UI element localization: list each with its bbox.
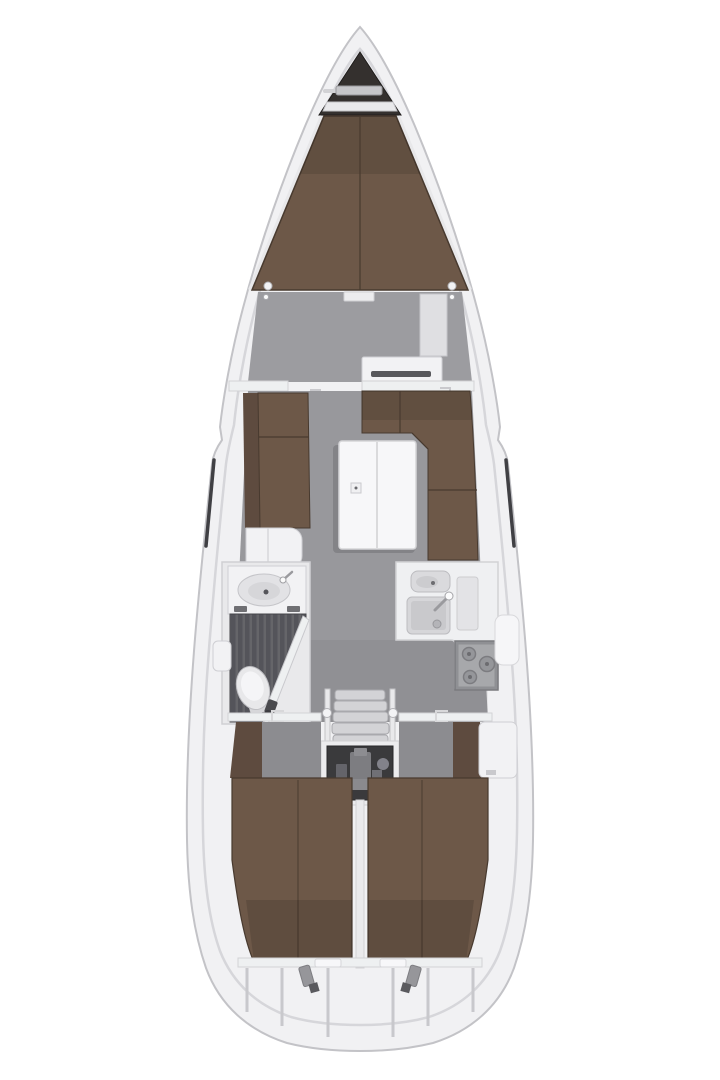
galley-sink-large-drain [433, 620, 441, 628]
step-3 [333, 712, 388, 722]
boat-floor-plan [0, 0, 720, 1080]
vanity-latch-right [287, 606, 300, 612]
head-faucet [280, 577, 286, 583]
aft-floor-port [262, 722, 321, 778]
settee-port [258, 393, 310, 528]
berth-rail-knob-port [264, 282, 272, 290]
berth-rail-knob-starboard [448, 282, 456, 290]
dinette-back-shade [362, 391, 472, 420]
burner-2-dot [485, 662, 489, 666]
locker-slot [371, 371, 431, 377]
engine-pod-port [336, 764, 347, 778]
aft-wardrobe-starboard [479, 722, 517, 778]
engine-mount [352, 779, 369, 790]
bulkhead-forward-starboard [362, 381, 474, 391]
galley-sink-small-drain [431, 581, 435, 585]
rail-knob-port [323, 709, 332, 718]
deck-stud-starboard [450, 295, 455, 300]
vanity-latch-left [234, 606, 247, 612]
step-4 [332, 723, 389, 734]
galley-faucet [445, 592, 453, 600]
rail-tab-starboard [380, 959, 406, 967]
settee-backrest-port [243, 393, 260, 528]
table-latch-dot [355, 487, 358, 490]
engine-pulley [377, 758, 389, 770]
head-sink-drain [264, 590, 269, 595]
aft-bulkhead-starboard [399, 713, 492, 721]
rail-tab-port [315, 959, 341, 967]
aft-floor-starboard [399, 722, 453, 778]
berth-foot-rail [238, 958, 482, 967]
forward-cabin [229, 116, 474, 399]
aft-wardrobe-latch [486, 770, 496, 775]
floor-plan-stage [0, 0, 720, 1080]
companionway-steps [332, 690, 389, 743]
step-2 [334, 701, 387, 711]
berth-divider-wall [356, 800, 364, 968]
aft-bulkhead-port [228, 713, 321, 721]
engine-head [354, 748, 367, 756]
foredeck-beam [323, 102, 397, 111]
head-compartment [213, 562, 310, 724]
bulkhead-forward-port [229, 381, 288, 391]
aft-berth-port-shade [246, 900, 352, 962]
helm-pod-starboard [495, 615, 519, 665]
step-1 [335, 690, 385, 700]
aft-berth-starboard-shade [368, 900, 474, 962]
hull-pod-port [213, 641, 231, 671]
rail-knob-starboard [389, 709, 398, 718]
berth-step [344, 292, 374, 301]
wardrobe [420, 294, 447, 356]
burner-3-dot [468, 675, 472, 679]
deck-stud-port [264, 295, 269, 300]
burner-1-dot [467, 652, 471, 656]
cutting-board [457, 577, 478, 630]
windlass [336, 86, 382, 95]
